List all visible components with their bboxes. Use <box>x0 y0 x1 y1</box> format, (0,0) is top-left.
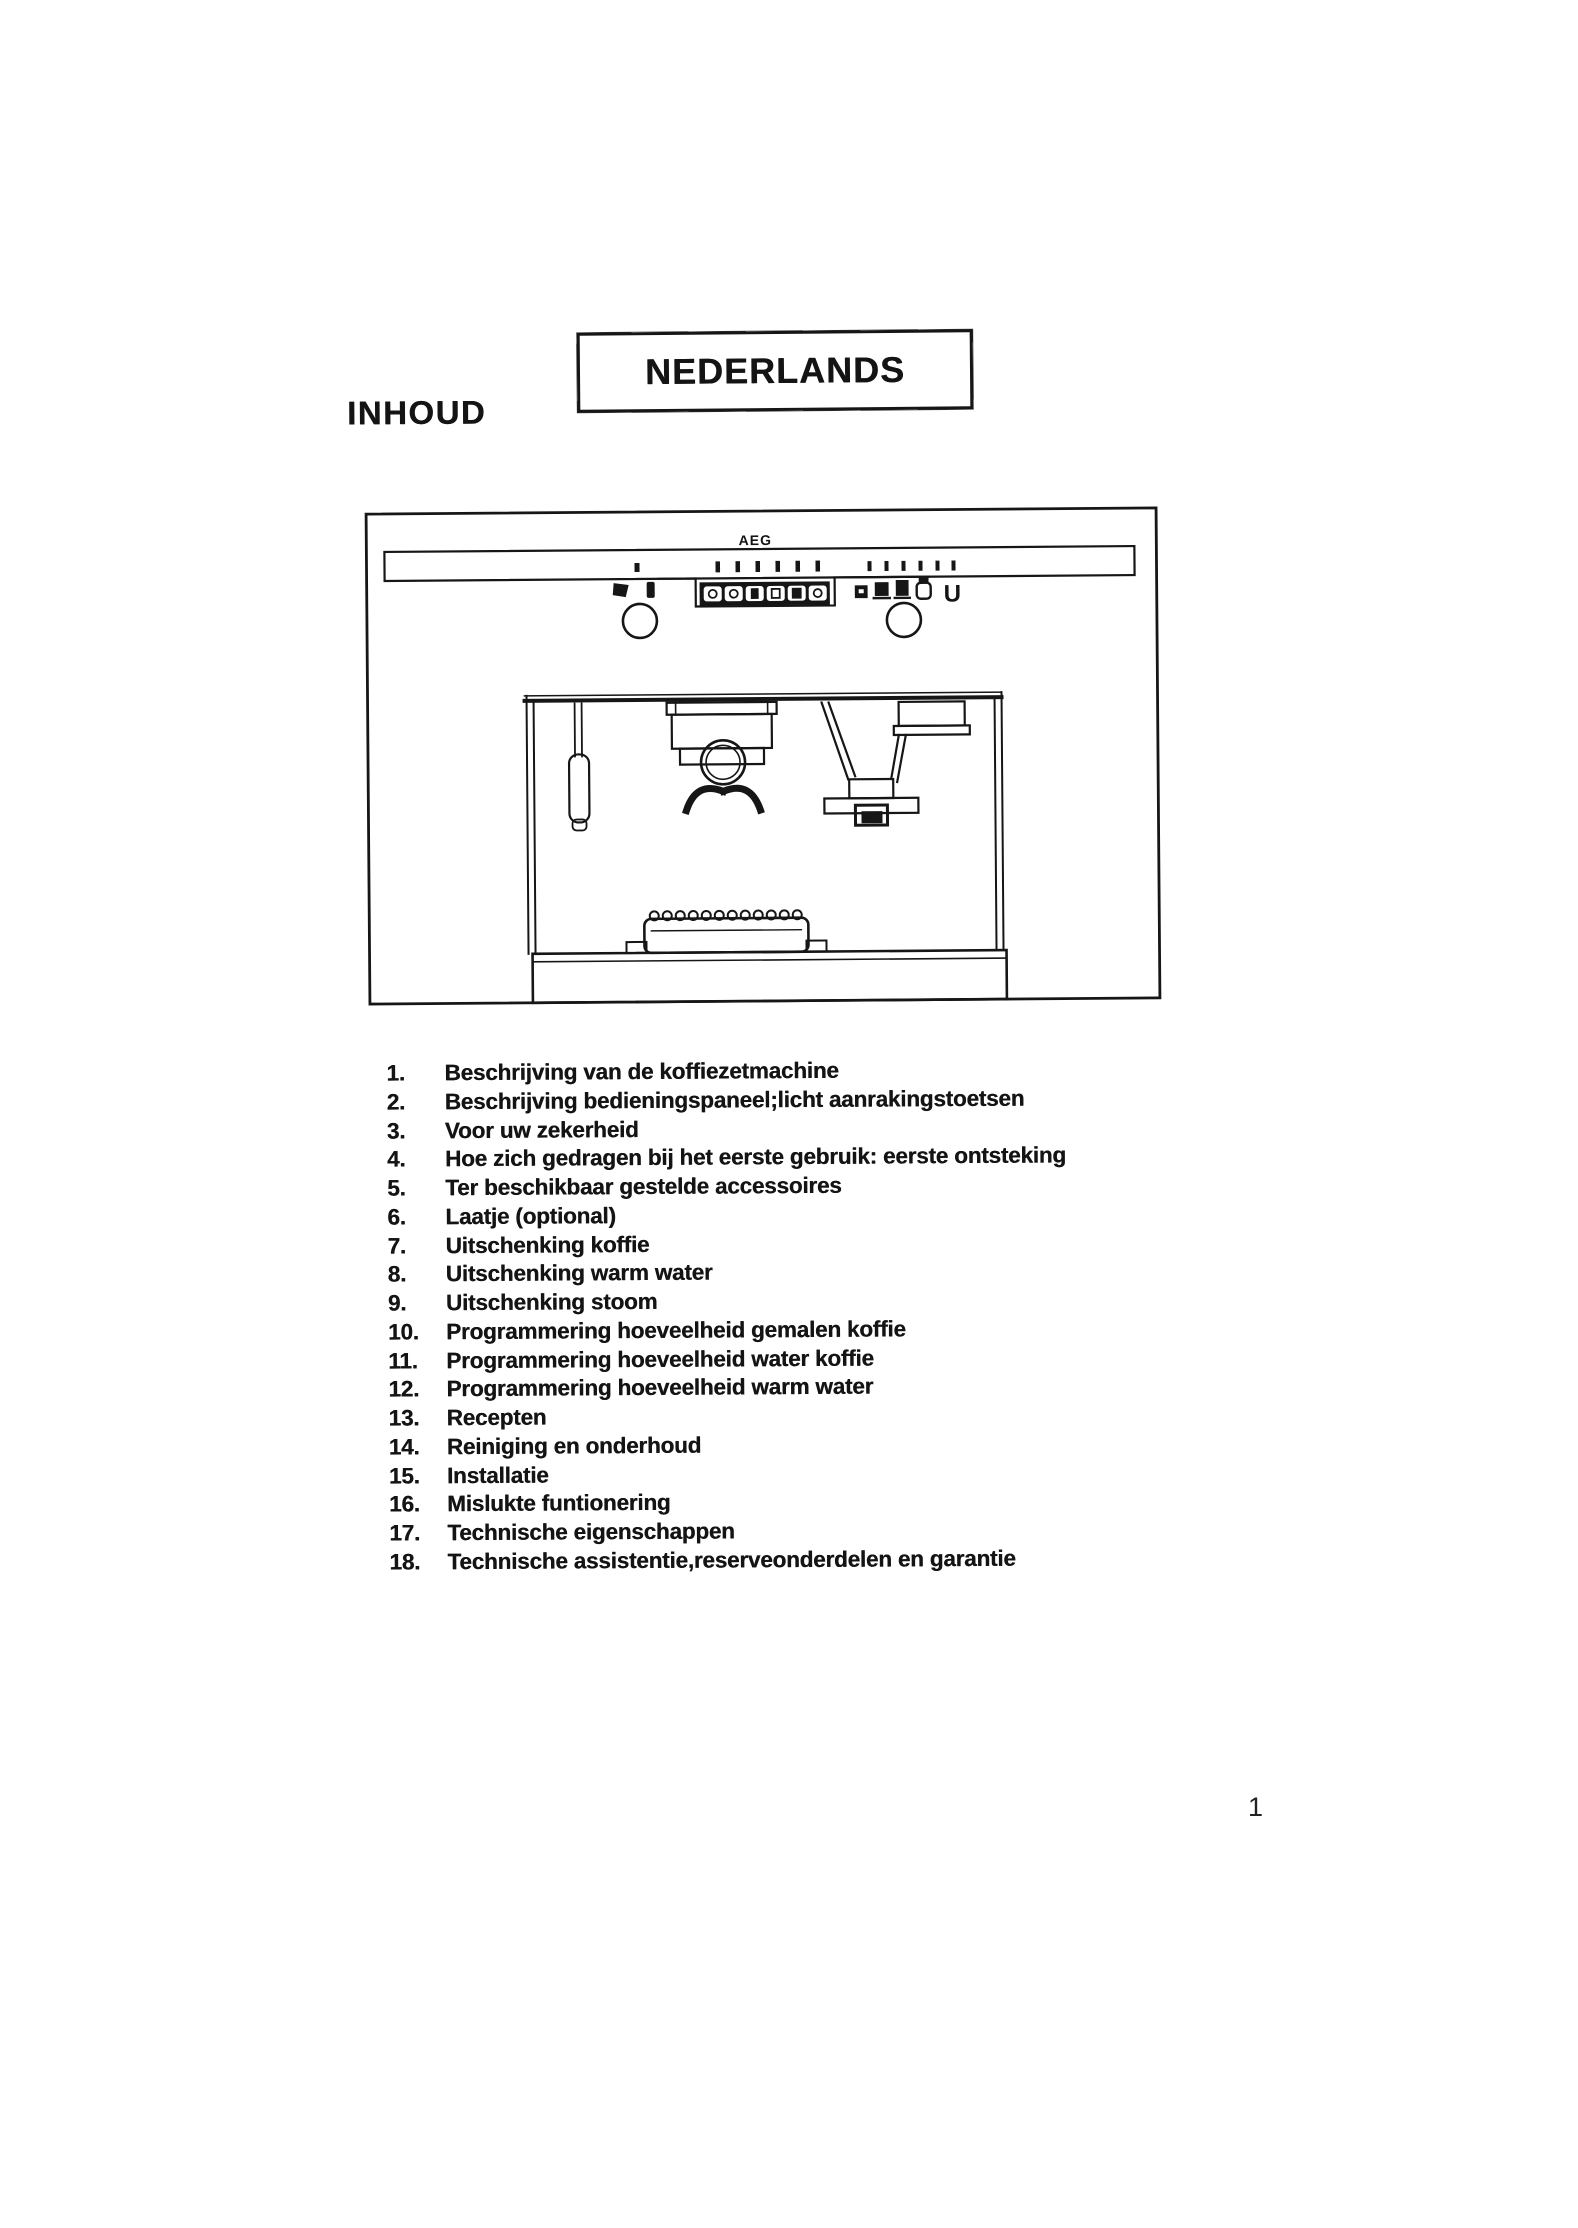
right-knob <box>887 603 921 637</box>
toc-item-label: Uitschenking koffie <box>445 1231 649 1258</box>
toc-item-label: Ter beschikbaar gestelde accessoires <box>445 1173 842 1201</box>
coffee-funnel <box>822 701 971 825</box>
ground-coffee-icon <box>856 586 867 597</box>
toc-item-label: Voor uw zekerheid <box>445 1117 639 1144</box>
toc-item-number: 17. <box>389 1520 447 1546</box>
page-title: INHOUD <box>347 394 486 433</box>
toc-item-label: Beschrijving van de koffiezetmachine <box>444 1058 838 1086</box>
toc-item-label: Mislukte funtionering <box>447 1490 670 1517</box>
table-of-contents: 1.Beschrijving van de koffiezetmachine2.… <box>386 1055 1229 1578</box>
display-block <box>701 582 829 604</box>
toc-item-label: Reiniging en onderhoud <box>447 1432 701 1460</box>
toc-item-number: 8. <box>388 1261 446 1287</box>
toc-item-label: Installatie <box>447 1462 549 1489</box>
toc-item-number: 5. <box>387 1175 445 1201</box>
toc-item-label: Uitschenking warm water <box>446 1260 713 1288</box>
drip-tray <box>533 950 1007 1003</box>
toc-item-number: 4. <box>387 1146 445 1172</box>
language-banner: NEDERLANDS <box>645 349 905 393</box>
small-cup-icon <box>874 583 890 598</box>
brand-logo-text: AEG <box>739 532 772 548</box>
toc-item-number: 11. <box>388 1348 446 1374</box>
toc-item-number: 1. <box>386 1060 444 1086</box>
power-u-icon: U <box>944 580 962 607</box>
toc-item-label: Hoe zich gedragen bij het eerste gebruik… <box>445 1143 1066 1173</box>
toc-item-number: 2. <box>387 1089 445 1115</box>
toc-item-number: 6. <box>387 1204 445 1230</box>
toc-item-number: 16. <box>389 1491 447 1517</box>
toc-item-label: Beschrijving bedieningspaneel;licht aanr… <box>445 1085 1025 1115</box>
page-number: 1 <box>1248 1792 1263 1823</box>
toc-item-number: 10. <box>388 1319 446 1345</box>
toc-item-label: Technische eigenschappen <box>447 1518 735 1546</box>
toc-item-label: Programmering hoeveelheid water koffie <box>446 1345 874 1374</box>
toc-item: 18.Technische assistentie,reserveonderde… <box>389 1544 1229 1578</box>
toc-item-number: 3. <box>387 1118 445 1144</box>
brew-group <box>667 702 778 811</box>
toc-item-number: 15. <box>389 1463 447 1489</box>
language-banner-box: NEDERLANDS <box>577 329 974 412</box>
toc-item-label: Technische assistentie,reserveonderdelen… <box>447 1545 1015 1574</box>
left-knob <box>623 604 657 638</box>
toc-item-label: Programmering hoeveelheid gemalen koffie <box>446 1316 906 1345</box>
coffee-bean-icons <box>613 582 655 598</box>
toc-item-label: Recepten <box>447 1405 547 1432</box>
toc-item-number: 13. <box>389 1405 447 1431</box>
manual-page: NEDERLANDS INHOUD AEG <box>0 0 1578 2228</box>
toc-item-label: Laatje (optional) <box>445 1203 616 1230</box>
toc-item-number: 12. <box>388 1376 446 1402</box>
drip-grid <box>626 910 826 953</box>
toc-item-label: Uitschenking stoom <box>446 1289 658 1316</box>
toc-item-number: 18. <box>389 1549 447 1575</box>
toc-item-number: 7. <box>387 1233 445 1259</box>
panel-tick-marks <box>634 559 955 573</box>
jug-icon <box>917 578 931 599</box>
large-cup-icon <box>895 581 910 598</box>
service-opening <box>525 692 1004 954</box>
toc-item-number: 9. <box>388 1290 446 1316</box>
toc-item-label: Programmering hoeveelheid warm water <box>446 1374 873 1403</box>
steam-wand <box>569 703 590 830</box>
coffee-machine-diagram: AEG <box>362 503 1164 1009</box>
toc-item-number: 14. <box>389 1434 447 1460</box>
